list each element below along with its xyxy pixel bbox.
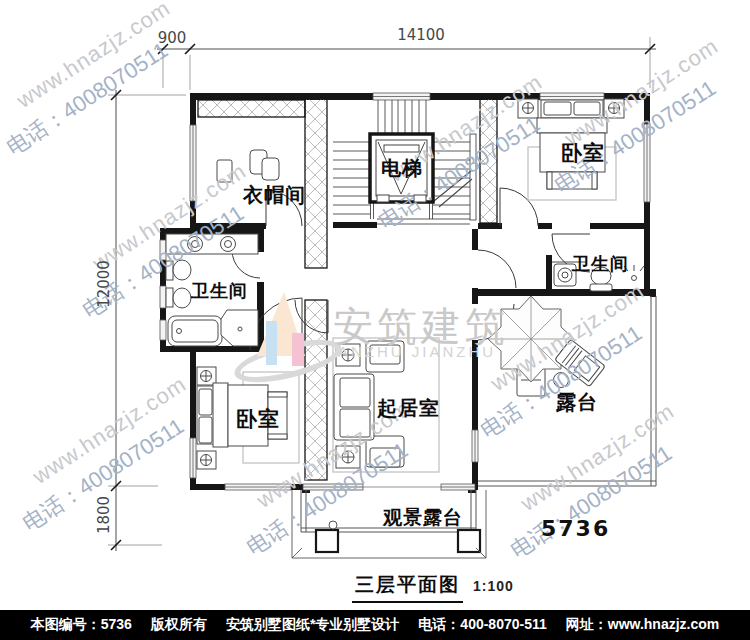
plan-number: 5736	[541, 516, 610, 541]
caption-scale: 1:100	[473, 572, 514, 594]
drawing-caption: 三层平面图 1:100	[352, 572, 514, 603]
bed-top	[537, 118, 607, 133]
room-label-view-terrace: 观景露台	[383, 505, 463, 531]
floor-plan-page: www.hnazjz.com电话：4008070511 www.hnazjz.c…	[0, 0, 750, 640]
terrace-furniture	[488, 296, 605, 396]
footer-company: 安筑别墅图纸*专业别墅设计	[226, 616, 399, 634]
footer-phone: 电话：400-8070-511	[418, 616, 546, 634]
footer-copyright: 版权所有	[151, 616, 207, 634]
cloakroom-furniture	[217, 150, 279, 182]
room-label-cloakroom: 衣帽间	[243, 182, 306, 209]
footer-bar: 本图编号：5736 版权所有 安筑别墅图纸*专业别墅设计 电话：400-8070…	[0, 610, 750, 640]
room-label-bathroom-left: 卫生间	[191, 279, 248, 303]
room-label-elevator: 电梯	[381, 155, 423, 182]
shower-head	[632, 276, 637, 281]
footer-plan-id: 本图编号：5736	[31, 616, 132, 634]
room-label-bathroom-right: 卫生间	[572, 252, 629, 276]
toilet	[173, 288, 191, 308]
room-label-bedroom-top: 卧室	[561, 139, 605, 167]
room-label-bedroom-bottom: 卧室	[236, 405, 280, 433]
dim-left-height: 12000	[95, 256, 113, 312]
footer-website: 网址：www.hnazjz.com	[566, 616, 720, 634]
room-label-terrace: 露台	[556, 389, 598, 416]
dim-left-balcony: 1800	[95, 487, 113, 543]
caption-title: 三层平面图	[352, 572, 463, 603]
room-label-living-room: 起居室	[377, 395, 440, 422]
dim-top-offset: 900	[150, 29, 194, 47]
bed-bottom	[213, 383, 228, 447]
floor-plan-drawing	[0, 0, 750, 640]
dim-top-width: 14100	[393, 26, 449, 44]
toilet	[173, 260, 191, 280]
